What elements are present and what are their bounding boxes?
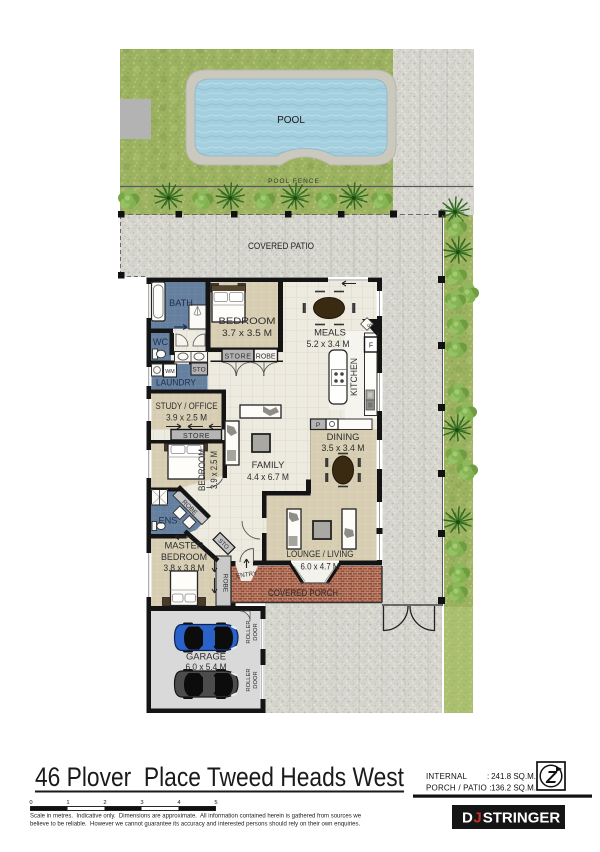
svg-text:Scale in metres. Indicative o: Scale in metres. Indicative only. Dimens… [30,814,362,820]
svg-text:DJSTRINGER: DJSTRINGER [462,810,560,827]
svg-text:BEDROOM: BEDROOM [161,551,207,562]
svg-text:136.2 SQ.M.: 136.2 SQ.M. [491,784,536,793]
svg-text:BATH: BATH [169,298,193,308]
svg-text:MASTER: MASTER [164,540,203,551]
svg-text:ROBE: ROBE [256,354,276,361]
svg-text:5: 5 [214,800,217,806]
svg-text:STO: STO [192,367,205,374]
svg-text:ROLLER: ROLLER [246,668,252,691]
svg-text:LAUNDRY: LAUNDRY [156,378,196,388]
svg-text:3.9 x 2.5 M: 3.9 x 2.5 M [208,451,219,489]
svg-text:WC: WC [153,337,169,347]
svg-text::: : [487,772,489,781]
svg-text:ROBE: ROBE [222,574,229,593]
svg-text:believe to be reliable. Howev: believe to be reliable. However we canno… [30,822,361,828]
svg-text:3.9 x 2.5 M: 3.9 x 2.5 M [166,412,207,423]
svg-text:COVERED PATIO: COVERED PATIO [248,241,314,251]
svg-text:P: P [316,422,320,429]
svg-text:POOL FENCE: POOL FENCE [268,178,320,185]
svg-text:ROLLER: ROLLER [246,620,252,643]
svg-text:F: F [369,343,373,350]
svg-text:S: S [367,323,374,328]
svg-text:BEDROOM: BEDROOM [196,449,207,491]
svg-text:GARAGE: GARAGE [186,651,226,662]
svg-text:0: 0 [29,800,32,806]
svg-text:DOOR: DOOR [253,623,259,640]
svg-text:STORE: STORE [225,354,252,361]
svg-text:3.7 x 3.5 M: 3.7 x 3.5 M [222,327,272,338]
svg-text:DINING: DINING [327,431,360,442]
svg-text:INTERNAL: INTERNAL [426,772,468,781]
svg-text:KITCHEN: KITCHEN [348,358,359,396]
svg-text:5.2 x 3.4 M: 5.2 x 3.4 M [307,338,350,349]
svg-text:MEALS: MEALS [314,327,346,338]
svg-text:BEDROOM: BEDROOM [219,315,276,326]
svg-text:241.8 SQ.M.: 241.8 SQ.M. [491,772,536,781]
svg-text:STORE: STORE [183,433,210,440]
svg-text:FAMILY: FAMILY [252,459,285,470]
svg-text:4.4 x 6.7 M: 4.4 x 6.7 M [247,471,289,482]
svg-text:6.0 x 5.4 M: 6.0 x 5.4 M [186,661,227,672]
svg-text:46 Plover Place Tweed Heads W: 46 Plover Place Tweed Heads West [35,762,405,792]
svg-text:1: 1 [66,800,69,806]
svg-text:ENS: ENS [159,516,178,526]
svg-text:DOOR: DOOR [253,671,259,688]
svg-text:WM: WM [165,369,174,375]
svg-text:3: 3 [140,800,143,806]
svg-text:STUDY / OFFICE: STUDY / OFFICE [156,400,218,411]
svg-text:LOUNGE / LIVING: LOUNGE / LIVING [287,548,354,559]
svg-text:6.0 x 4.7 M: 6.0 x 4.7 M [301,561,340,572]
svg-text:3.8 x 3.8 M: 3.8 x 3.8 M [164,562,205,573]
svg-text:POOL: POOL [277,115,305,126]
svg-text:2: 2 [103,800,106,806]
svg-text:3.5 x 3.4 M: 3.5 x 3.4 M [322,442,365,453]
svg-text:COVERED PORCH: COVERED PORCH [268,588,338,599]
svg-text:PORCH / PATIO :: PORCH / PATIO : [426,784,492,793]
